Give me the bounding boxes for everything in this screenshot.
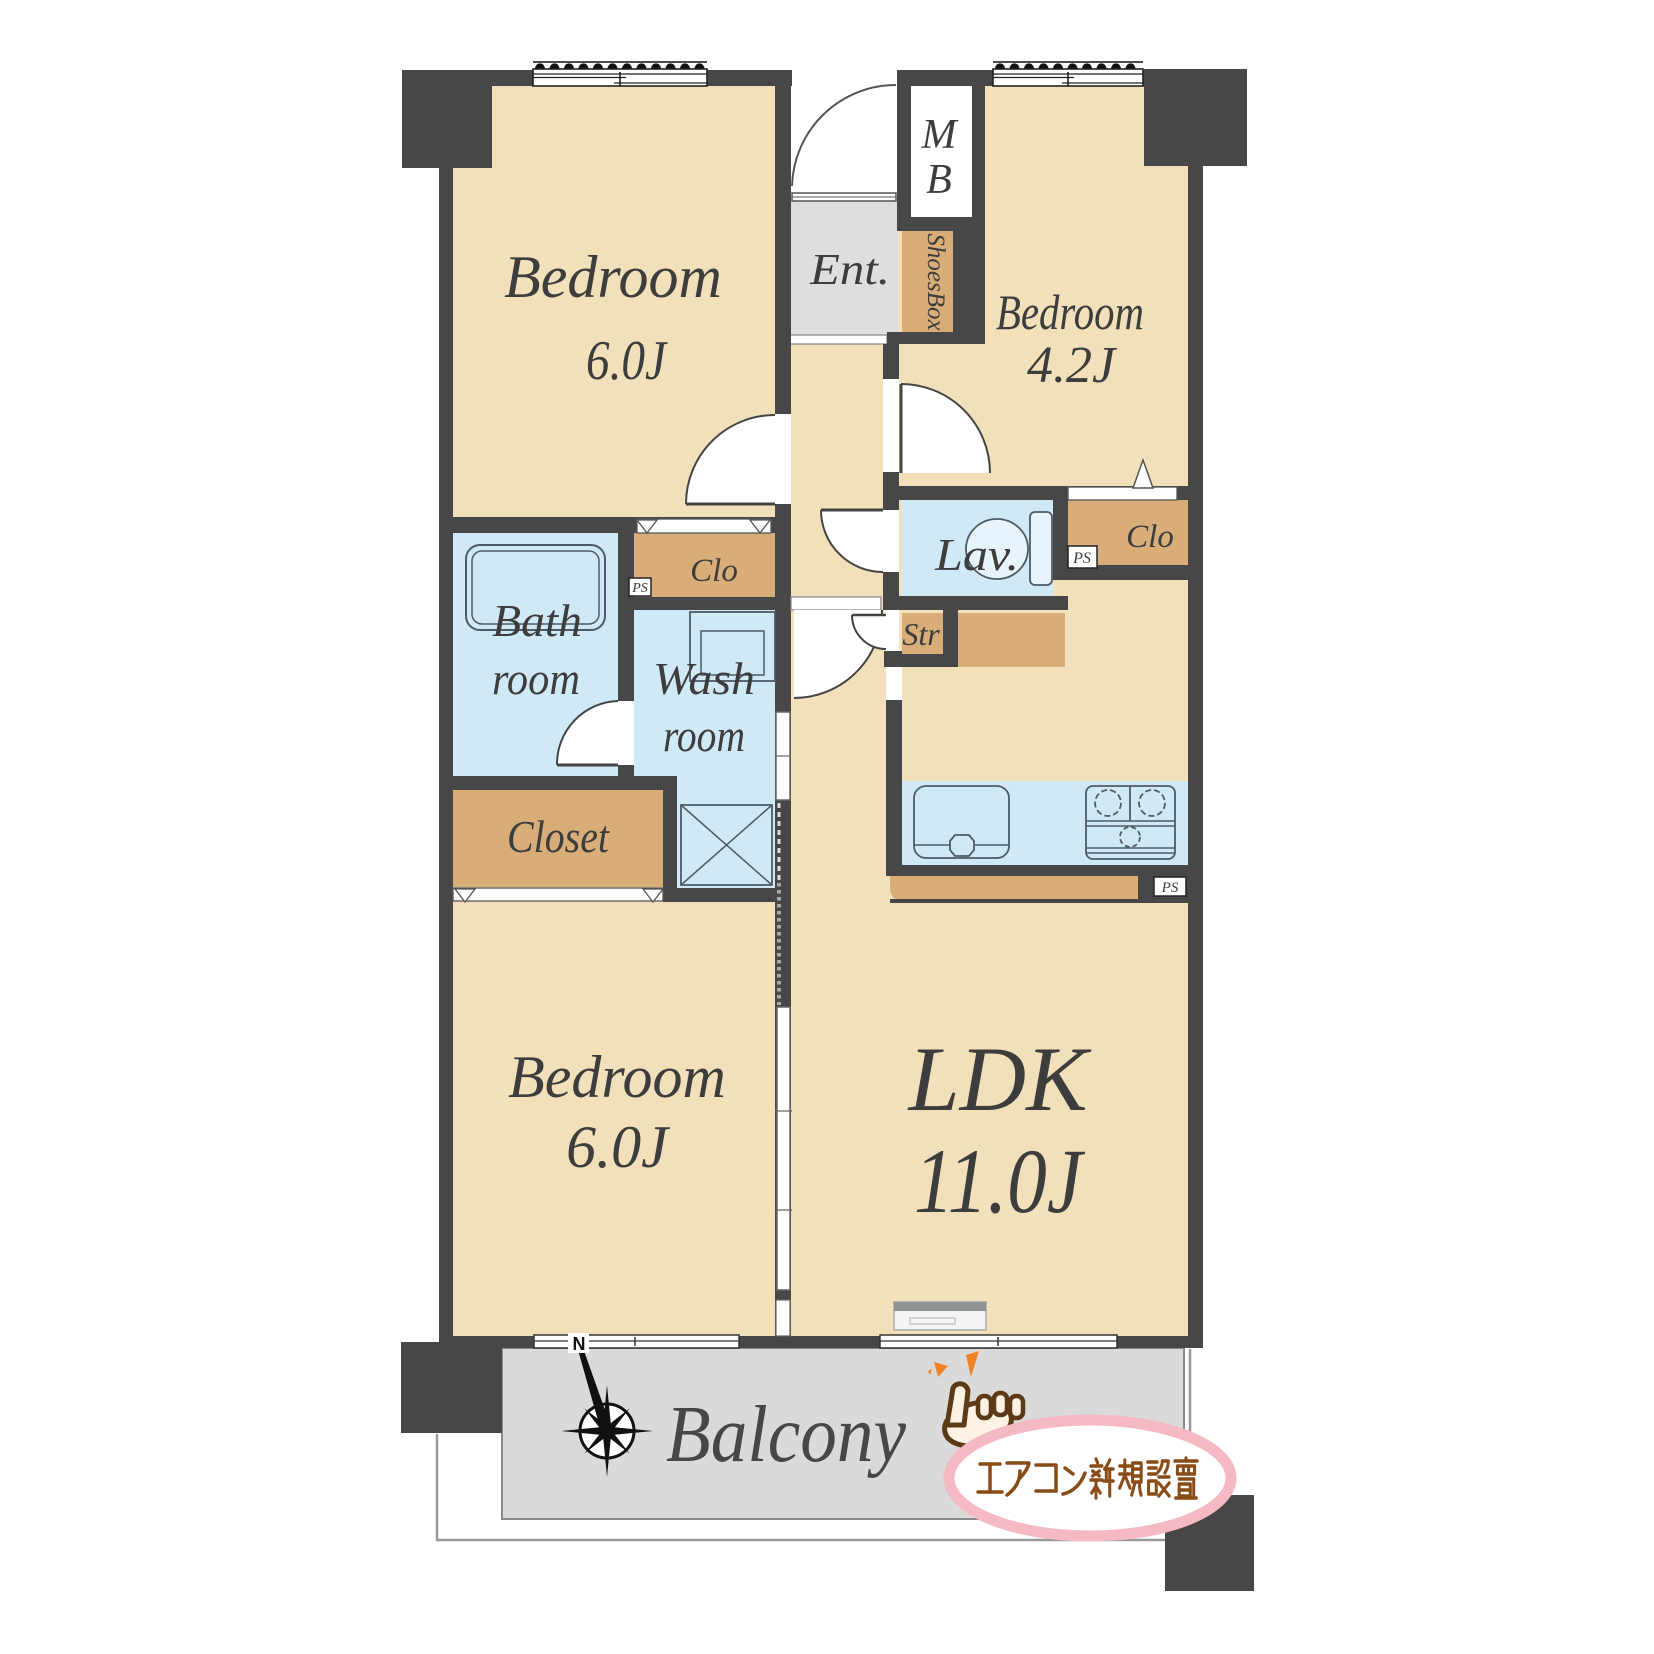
svg-text:room: room — [663, 710, 745, 761]
svg-text:PS: PS — [631, 581, 648, 596]
svg-text:Ent.: Ent. — [809, 245, 890, 294]
svg-text:6.0J: 6.0J — [586, 330, 669, 392]
svg-text:Bedroom: Bedroom — [996, 284, 1144, 340]
svg-text:Closet: Closet — [507, 811, 610, 862]
svg-text:Lav.: Lav. — [934, 529, 1019, 580]
svg-text:N: N — [573, 1334, 586, 1354]
svg-text:Clo: Clo — [690, 553, 738, 589]
svg-text:Balcony: Balcony — [666, 1391, 906, 1479]
svg-text:PS: PS — [1161, 880, 1179, 896]
svg-text:ShoesBox: ShoesBox — [922, 233, 949, 330]
svg-text:room: room — [492, 653, 580, 704]
svg-text:M: M — [921, 112, 959, 158]
svg-text:Clo: Clo — [1126, 519, 1174, 555]
svg-text:6.0J: 6.0J — [566, 1114, 670, 1180]
svg-text:Bedroom: Bedroom — [508, 1044, 726, 1110]
svg-text:Wash: Wash — [653, 653, 755, 704]
svg-text:11.0J: 11.0J — [914, 1130, 1086, 1232]
svg-text:PS: PS — [1072, 550, 1091, 567]
svg-text:Bath: Bath — [492, 595, 582, 646]
svg-text:B: B — [926, 157, 952, 203]
svg-text:4.2J: 4.2J — [1027, 337, 1118, 394]
svg-text:Str: Str — [902, 616, 940, 652]
svg-text:LDK: LDK — [907, 1028, 1093, 1130]
svg-text:Bedroom: Bedroom — [504, 244, 722, 310]
